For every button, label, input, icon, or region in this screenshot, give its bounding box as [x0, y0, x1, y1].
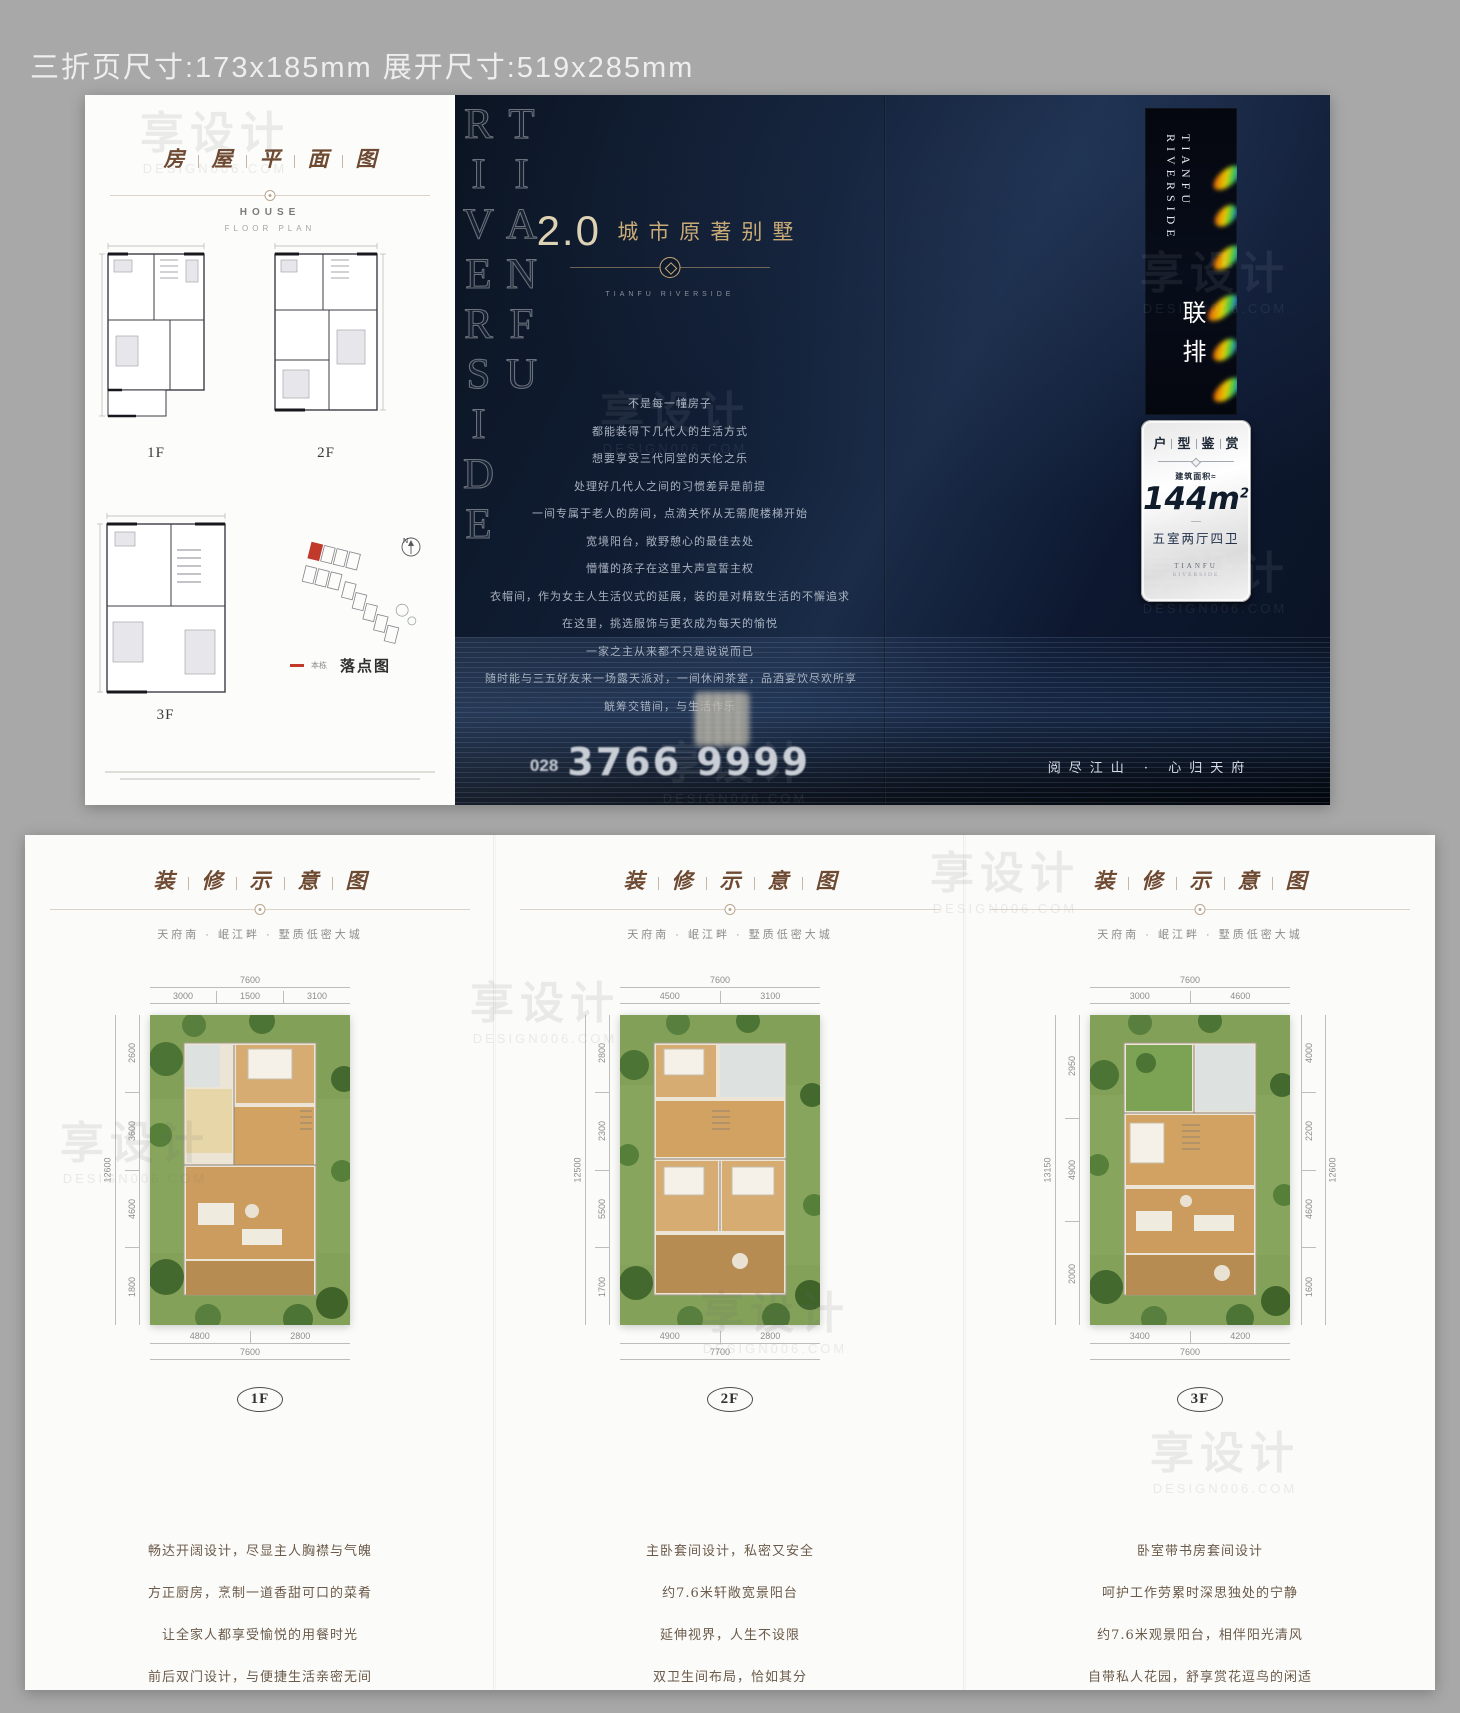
dim-bottom-segments: 48002800 [150, 1331, 350, 1344]
area-value: 144m2 [1141, 482, 1251, 518]
floorplan-1f-drawing [100, 240, 212, 430]
dim-bottom-segments: 34004200 [1090, 1331, 1290, 1344]
back-subtitle: 天府南 · 岷江畔 · 墅质低密大城 [495, 926, 965, 942]
front-sheet: 房屋平面图 HOUSE FLOOR PLAN 1F [85, 95, 1330, 805]
dim-top-total: 7600 [1090, 975, 1290, 988]
mockup-size-caption: 三折页尺寸:173x185mm 展开尺寸:519x285mm [30, 44, 694, 86]
disclaimer-line [120, 778, 420, 780]
cover-slogan: 阅尽江山 · 心归天府 [1000, 757, 1300, 776]
prism-glitch [1209, 162, 1237, 193]
back-title: 装修示意图 [495, 865, 965, 895]
floor-badge-3f: 3F [965, 1387, 1435, 1412]
headline-text: 城市原著别墅 [617, 220, 803, 244]
intro-copy: 不是每一幢房子 都能装得下几代人的生活方式 想要享受三代同堂的天伦之乐 处理好几… [485, 395, 855, 725]
back-sheet: 装修示意图 天府南 · 岷江畔 · 墅质低密大城 装修示意图 天府南 · 岷江畔… [25, 835, 1435, 1690]
unit-card-title: 户型鉴赏 [1141, 433, 1251, 453]
ornament-divider [520, 909, 940, 910]
product-type-label: 联排 [1175, 300, 1210, 378]
legend-label: 本栋 [311, 660, 327, 671]
site-plan-drawing: N [283, 533, 433, 655]
card-divider [1158, 461, 1234, 462]
back-title: 装修示意图 [965, 865, 1435, 895]
back-panel-head-2: 装修示意图 天府南 · 岷江畔 · 墅质低密大城 [495, 865, 965, 942]
prism-glitch [1209, 374, 1237, 405]
site-plan-legend: 本栋 落点图 [290, 655, 391, 676]
dim-left-segments: 2800230055001700 [595, 1015, 610, 1325]
dim-bottom-total: 7600 [1090, 1347, 1290, 1360]
legend-red-swatch [290, 664, 304, 667]
floor-label-2f: 2F [265, 445, 387, 462]
dim-bottom-segments: 49002800 [620, 1331, 820, 1344]
card-brand: TIANFURIVERSIDE [1141, 562, 1251, 578]
dim-left-total: 12600 [101, 1015, 116, 1325]
prism-glitch [1209, 242, 1237, 273]
floor-badge-2f: 2F [495, 1387, 965, 1412]
dim-bottom-total: 7600 [150, 1347, 350, 1360]
hotline-prefix: 028 [530, 756, 558, 775]
dim-left-segments: 2600360046001800 [125, 1015, 140, 1325]
hotline-number: 3766 9999 [567, 740, 810, 784]
back-desc-3f: 卧室带书房套间设计 呵护工作劳累时深思独处的宁静 约7.6米观景阳台，相伴阳光清… [965, 1540, 1435, 1690]
dim-top-total: 7600 [150, 975, 350, 988]
back-desc-2f: 主卧套间设计，私密又安全 约7.6米轩敞宽景阳台 延伸视界，人生不设限 双卫生间… [495, 1540, 965, 1690]
dim-right-total: 12600 [1325, 1015, 1340, 1325]
floor-label-3f: 3F [97, 707, 234, 724]
back-panel-head-3: 装修示意图 天府南 · 岷江畔 · 墅质低密大城 [965, 865, 1435, 942]
prism-glitch [1211, 202, 1237, 230]
card-tick [1191, 521, 1201, 522]
site-plan-label: 落点图 [340, 655, 391, 676]
intro-panel: TIANFU RIVERSIDE 2.0 城市原著别墅 TIANFU RIVER… [455, 95, 885, 805]
dim-left-segments: 295049002000 [1065, 1015, 1080, 1325]
room-layout-label: 五室两厅四卫 [1141, 528, 1251, 547]
brand-logo-icon [660, 257, 681, 278]
seal-icon [255, 904, 266, 915]
headline-divider [570, 267, 770, 268]
headline-number: 2.0 [537, 207, 601, 254]
garden-plan-block-2f: 7600 45003100 12500 2800230055001700 [555, 975, 885, 1375]
floorplan-panel-title: 房屋平面图 [85, 143, 455, 173]
prism-glitch [1209, 335, 1237, 364]
compass-n-label: N [403, 538, 408, 545]
cover-strip: TIANFU RIVERSIDE 联排 [1145, 108, 1237, 415]
ornament-divider [990, 909, 1410, 910]
floorplan-3f-drawing [97, 510, 234, 700]
floorplan-2f-drawing [265, 240, 387, 420]
garden-plan-block-1f: 7600 300015003100 12600 2600360046001800 [85, 975, 415, 1375]
garden-plan-image-1f [150, 1015, 350, 1325]
fold-crease [493, 835, 496, 1690]
seal-icon [265, 190, 276, 201]
headline: 2.0 城市原著别墅 [455, 207, 885, 255]
brand-caption: TIANFU RIVERSIDE [455, 291, 885, 298]
back-subtitle: 天府南 · 岷江畔 · 墅质低密大城 [25, 926, 495, 942]
cover-panel: TIANFU RIVERSIDE 联排 户型鉴赏 建筑面积≈ 144m2 [885, 95, 1330, 805]
subtitle-house: HOUSE [85, 207, 455, 218]
dim-top-segments: 30004600 [1090, 991, 1290, 1004]
ornament-divider [50, 909, 470, 910]
hotline: 0283766 9999 [455, 740, 885, 784]
floor-label-1f: 1F [100, 445, 212, 462]
back-subtitle: 天府南 · 岷江畔 · 墅质低密大城 [965, 926, 1435, 942]
strip-brand-text: TIANFU RIVERSIDE [1163, 134, 1193, 304]
dim-left-total: 13150 [1041, 1015, 1056, 1325]
fold-crease [963, 835, 966, 1690]
dim-top-segments: 45003100 [620, 991, 820, 1004]
fold-line [884, 95, 886, 805]
dim-left-total: 12500 [571, 1015, 586, 1325]
garden-plan-image-2f [620, 1015, 820, 1325]
floor-badge-1f: 1F [25, 1387, 495, 1412]
dim-top-total: 7600 [620, 975, 820, 988]
seal-icon [1195, 904, 1206, 915]
back-panel-head-1: 装修示意图 天府南 · 岷江畔 · 墅质低密大城 [25, 865, 495, 942]
dim-right-segments: 4000220046001600 [1301, 1015, 1316, 1325]
back-title: 装修示意图 [25, 865, 495, 895]
garden-plan-image-3f [1090, 1015, 1290, 1325]
back-desc-1f: 畅达开阔设计，尽显主人胸襟与气魄 方正厨房，烹制一道香甜可口的菜肴 让全家人都享… [25, 1540, 495, 1690]
dim-bottom-total: 7700 [620, 1347, 820, 1360]
floorplan-panel: 房屋平面图 HOUSE FLOOR PLAN 1F [85, 95, 455, 805]
front-dark-section: TIANFU RIVERSIDE 2.0 城市原著别墅 TIANFU RIVER… [455, 95, 1330, 805]
brochure-mockup: 三折页尺寸:173x185mm 展开尺寸:519x285mm 图 房屋平面图 H… [0, 0, 1460, 1713]
ornament-divider [110, 195, 430, 196]
disclaimer-line [105, 771, 435, 773]
garden-plan-block-3f: 7600 30004600 13150 295049002000 [1025, 975, 1355, 1375]
subtitle-floorplan: FLOOR PLAN [85, 224, 455, 233]
dim-top-segments: 300015003100 [150, 991, 350, 1004]
unit-card: 户型鉴赏 建筑面积≈ 144m2 五室两厅四卫 TIANFURIVERSIDE [1141, 420, 1251, 602]
qr-code-blurred [695, 692, 749, 746]
seal-icon [725, 904, 736, 915]
